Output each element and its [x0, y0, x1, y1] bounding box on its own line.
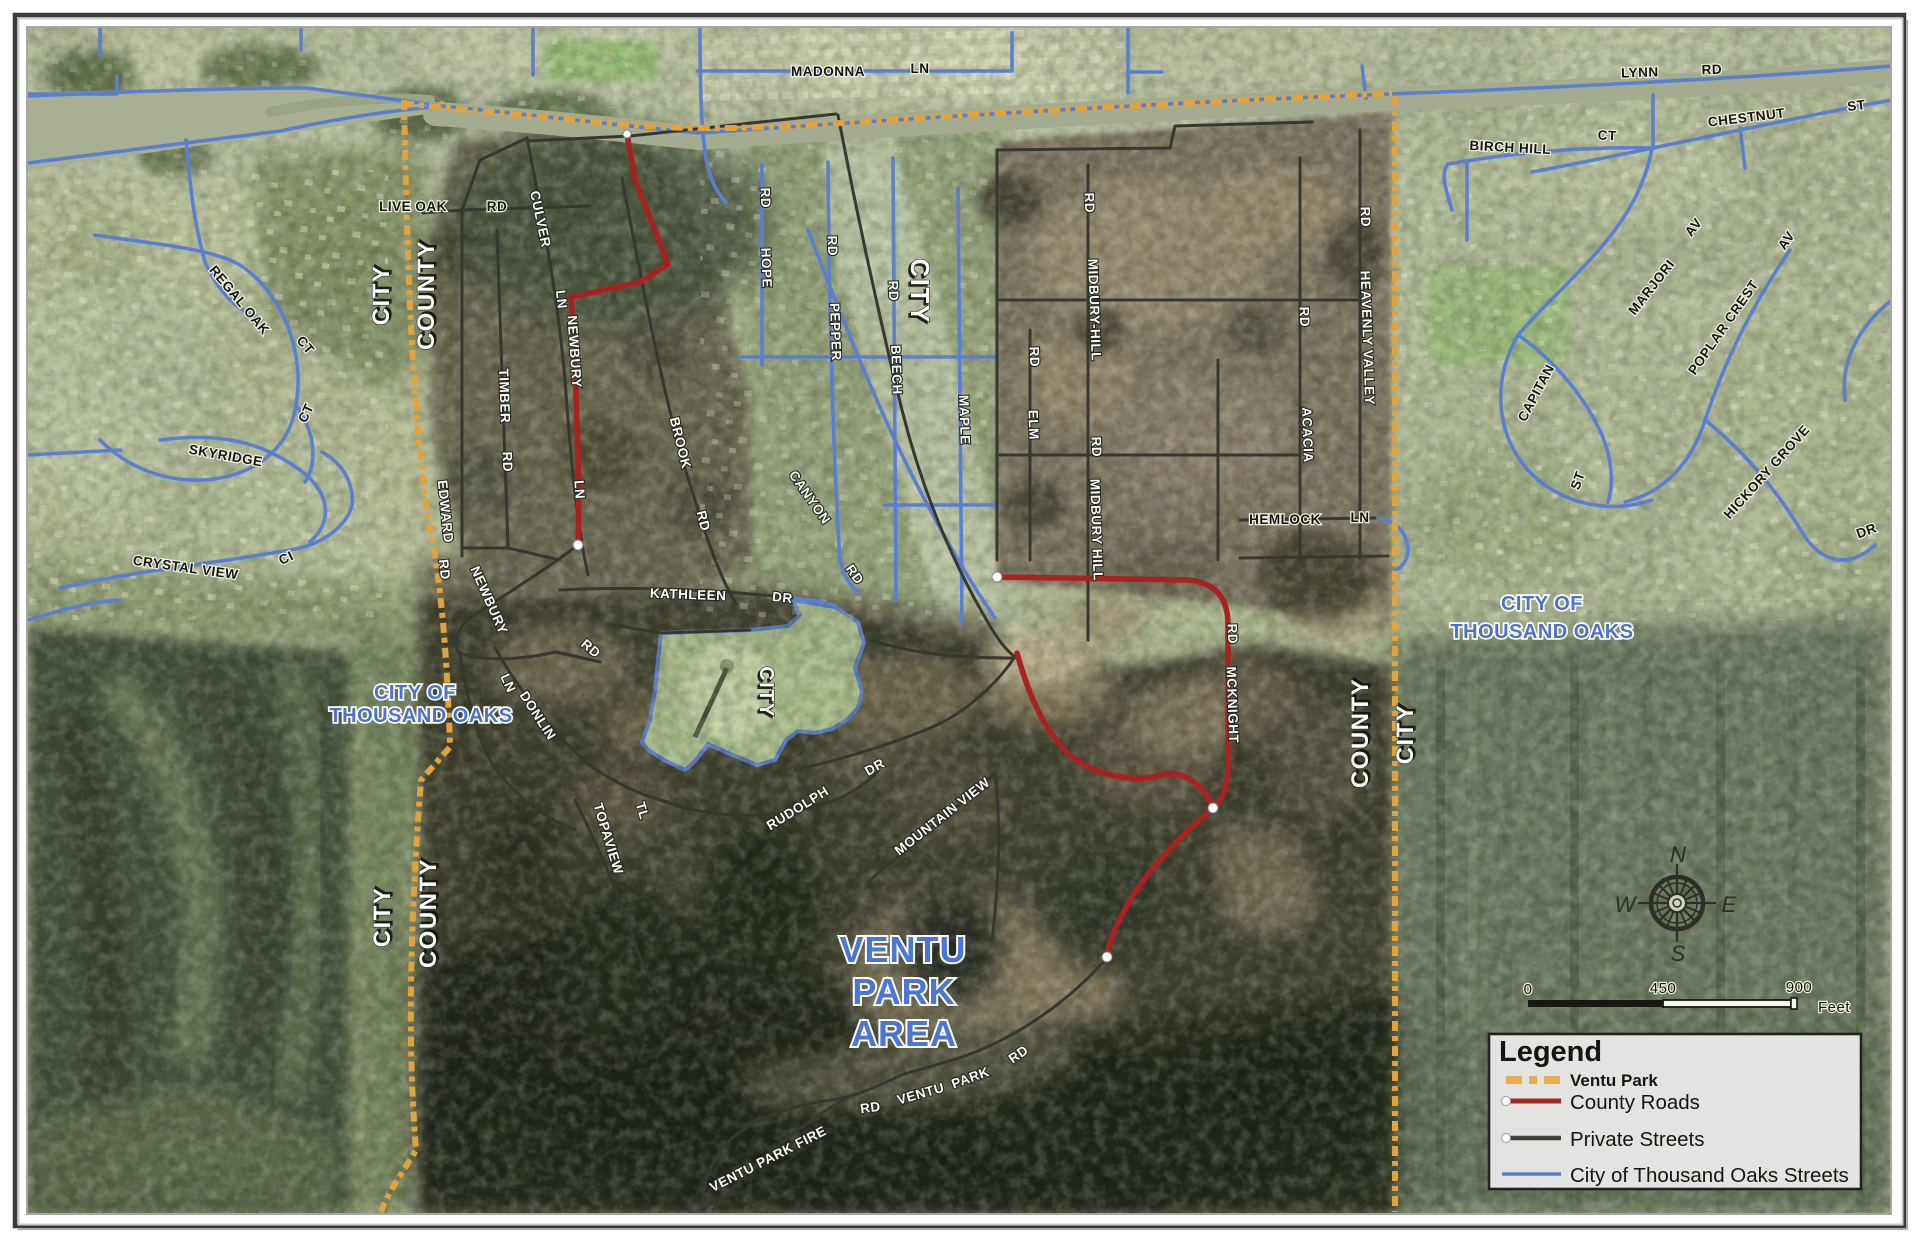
svg-text:N: N	[1670, 842, 1686, 867]
svg-text:RD: RD	[859, 1099, 881, 1117]
svg-text:CITY OF: CITY OF	[374, 682, 456, 704]
svg-text:COUNTY: COUNTY	[415, 858, 442, 968]
svg-text:PARK: PARK	[852, 971, 955, 1012]
svg-text:LYNN: LYNN	[1621, 64, 1659, 80]
svg-text:VENTU: VENTU	[839, 929, 966, 970]
svg-text:CITY: CITY	[905, 258, 935, 323]
svg-text:RD: RD	[487, 199, 508, 214]
svg-text:450: 450	[1650, 980, 1677, 997]
svg-text:RD: RD	[758, 187, 774, 208]
svg-text:THOUSAND OAKS: THOUSAND OAKS	[329, 705, 512, 727]
svg-text:RD: RD	[1358, 206, 1374, 227]
svg-text:RD: RD	[1225, 623, 1241, 644]
svg-text:RD: RD	[1701, 62, 1722, 78]
svg-text:CITY OF: CITY OF	[1501, 593, 1583, 615]
svg-text:DR: DR	[771, 589, 793, 606]
svg-text:Feet: Feet	[1818, 999, 1850, 1016]
svg-text:AREA: AREA	[851, 1013, 957, 1054]
svg-text:RD: RD	[1082, 192, 1098, 213]
svg-text:S: S	[1671, 941, 1686, 966]
svg-text:RD: RD	[886, 280, 902, 301]
svg-text:CITY: CITY	[1392, 704, 1419, 765]
svg-text:Legend: Legend	[1499, 1036, 1602, 1068]
svg-text:LIVE OAK: LIVE OAK	[379, 199, 447, 214]
svg-text:COUNTY: COUNTY	[1347, 678, 1374, 788]
svg-text:MAPLE: MAPLE	[956, 395, 973, 445]
svg-text:E: E	[1722, 892, 1737, 917]
svg-text:CT: CT	[1597, 128, 1617, 144]
svg-text:Private Streets: Private Streets	[1570, 1128, 1704, 1151]
svg-text:ST: ST	[1846, 97, 1866, 114]
svg-text:RD: RD	[436, 559, 453, 581]
svg-text:COUNTY: COUNTY	[413, 240, 440, 350]
svg-text:County Roads: County Roads	[1570, 1091, 1700, 1114]
svg-text:900: 900	[1786, 979, 1813, 996]
svg-text:RD: RD	[1297, 306, 1313, 327]
svg-text:CITY: CITY	[369, 887, 396, 948]
svg-text:LN: LN	[571, 480, 587, 500]
svg-text:City of Thousand Oaks Streets: City of Thousand Oaks Streets	[1570, 1164, 1849, 1187]
svg-text:ACACIA: ACACIA	[1299, 407, 1316, 463]
svg-text:LN: LN	[1351, 510, 1370, 525]
svg-text:THOUSAND OAKS: THOUSAND OAKS	[1450, 621, 1633, 643]
svg-text:Ventu Park: Ventu Park	[1570, 1071, 1658, 1090]
svg-text:W: W	[1615, 892, 1638, 917]
svg-text:LN: LN	[553, 289, 570, 310]
svg-text:RD: RD	[1027, 346, 1043, 367]
svg-text:RD: RD	[500, 451, 516, 472]
svg-text:LN: LN	[911, 61, 930, 76]
svg-text:PEPPER: PEPPER	[827, 303, 844, 361]
svg-text:CITY: CITY	[368, 265, 395, 326]
svg-text:ELM: ELM	[1025, 410, 1041, 441]
svg-text:HEMLOCK: HEMLOCK	[1249, 512, 1321, 527]
svg-text:0: 0	[1524, 981, 1533, 998]
svg-text:RD: RD	[825, 235, 841, 256]
svg-text:MCKNIGHT: MCKNIGHT	[1224, 666, 1242, 743]
svg-text:RD: RD	[1089, 436, 1105, 457]
svg-text:HOPE: HOPE	[758, 247, 774, 288]
svg-text:BEECH: BEECH	[888, 345, 905, 395]
svg-text:TIMBER: TIMBER	[496, 368, 513, 423]
svg-text:MADONNA: MADONNA	[791, 64, 865, 79]
svg-text:CITY: CITY	[755, 666, 777, 718]
svg-text:KATHLEEN: KATHLEEN	[650, 586, 727, 604]
